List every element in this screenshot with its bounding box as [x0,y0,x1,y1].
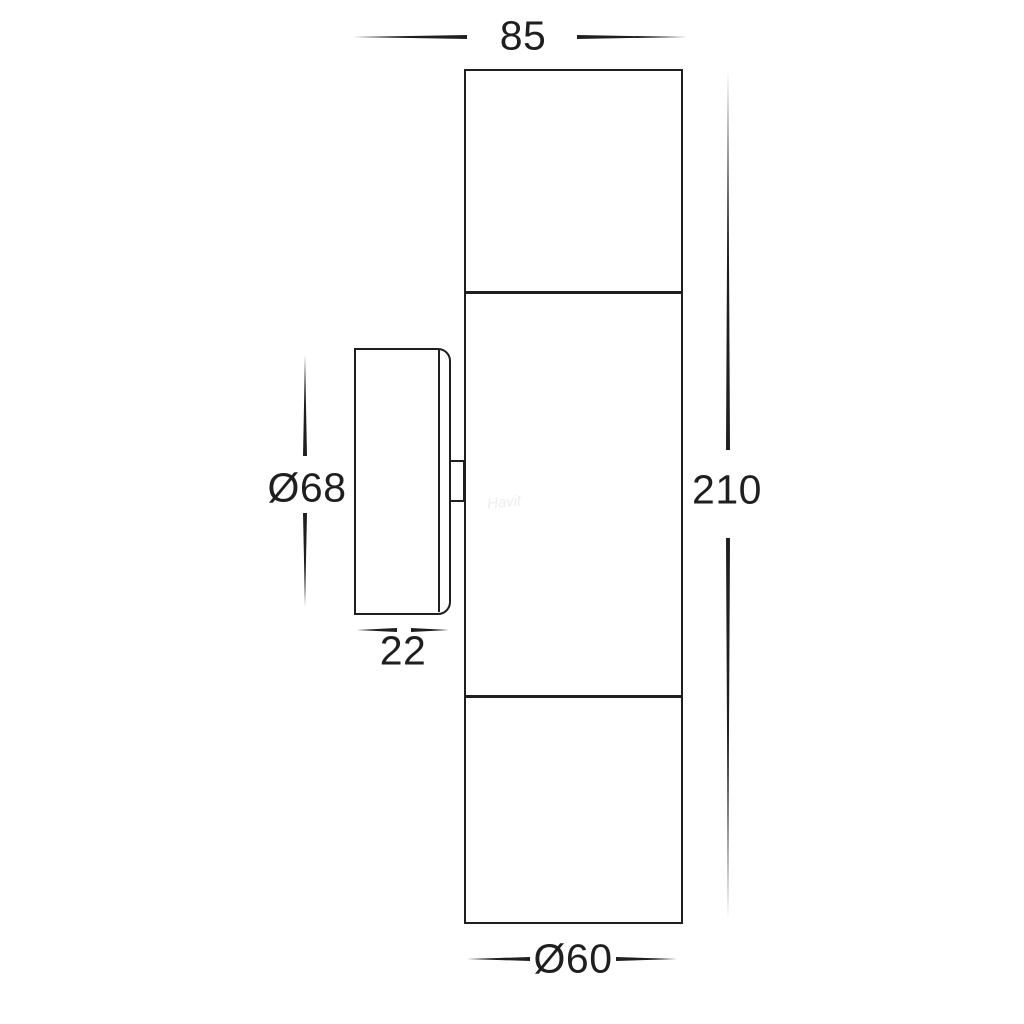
body-lower-section-divider-line [465,695,682,698]
mounting-plate-side-view [354,348,451,615]
dim-60-stroke-left [467,957,530,961]
dim-68-stroke-bottom [303,513,307,607]
dimension-drawing-canvas: Havit 85 210 Ø68 22 Ø60 [0,0,1024,1024]
dim-label-top-width: 85 [500,16,547,57]
plate-body-connector-block [449,460,465,502]
mounting-plate-seam-line [438,350,440,612]
dim-85-stroke-right [577,35,687,39]
dim-210-stroke-bottom [726,538,730,920]
dim-label-overall-height: 210 [692,470,762,511]
dim-210-stroke-top [726,70,730,450]
dim-68-stroke-top [303,355,307,456]
dim-label-body-diameter: Ø60 [534,939,613,980]
dim-label-backplate-depth: 22 [380,631,427,672]
body-upper-section-divider-line [465,291,682,294]
dim-85-stroke-left [353,35,467,39]
dim-60-stroke-right [616,957,677,961]
dim-label-backplate-diameter: Ø68 [268,468,347,509]
watermark: Havit [486,492,522,512]
